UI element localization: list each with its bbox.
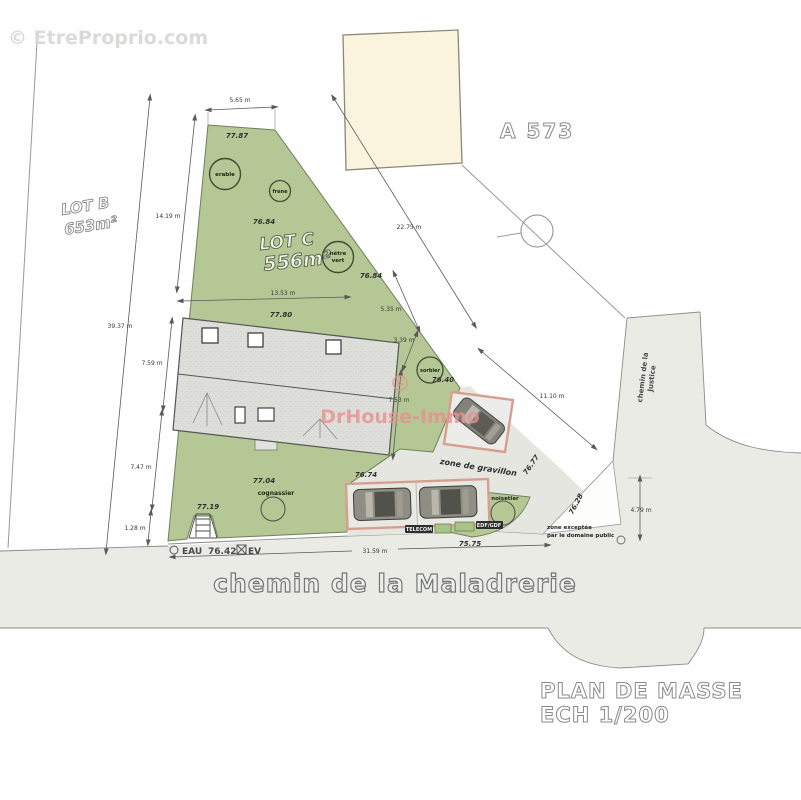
dimension-label: 13.53 m (271, 290, 296, 297)
roof-window (202, 328, 218, 343)
edf-label: EDF/GDF (477, 523, 501, 529)
dimension-label: 11.10 m (540, 393, 565, 400)
street-maladrerie: chemin de la Maladrerie (213, 569, 577, 598)
tree-label: hêtre (330, 250, 347, 257)
main-building (173, 318, 399, 455)
elevation: 76.40 (432, 376, 454, 384)
water-utility-row: EAU 76.42 EV (170, 545, 261, 557)
site-plan-page: erable frene hêtre vert sorbier cognassi… (0, 0, 801, 800)
tree-label: vert (332, 258, 345, 264)
dimension-label: 7.53 m (388, 397, 409, 404)
elevation: 77.04 (253, 477, 275, 485)
dimension-label: 5.35 m (380, 306, 401, 313)
parked-car-right (419, 485, 477, 518)
tree-label: sorbier (420, 368, 441, 374)
roof-window (258, 408, 274, 421)
dimension-label: 39.37 m (108, 323, 133, 330)
telecom-label: TELECOM (406, 527, 432, 533)
plan-scale: ECH 1/200 (540, 703, 670, 727)
parked-car-left (353, 488, 411, 521)
elevation: 76.84 (253, 218, 275, 226)
neighbor-building (343, 30, 462, 170)
telecom-box (435, 524, 451, 533)
public-domain-note: zone exceptée (547, 524, 592, 531)
dimension-label: 4.79 m (630, 507, 651, 514)
tree-label: noisetier (491, 496, 519, 502)
parcel-a573-label: A 573 (500, 119, 574, 143)
elevation: 77.19 (197, 503, 219, 511)
dimension-label: 14.19 m (156, 213, 181, 220)
eau-label: EAU (182, 547, 202, 557)
tree-label: erable (215, 172, 235, 178)
elevation: 77.80 (270, 311, 292, 319)
copyright-symbol: © (396, 379, 405, 389)
tree-label: frene (273, 189, 289, 195)
public-domain-note: par le domaine public (547, 533, 614, 539)
dimension-label: 7.47 m (130, 464, 151, 471)
etreproprio-watermark: © EtreProprio.com (8, 27, 208, 49)
dimension-label: 22.75 m (397, 224, 422, 231)
elevation: 76.74 (355, 471, 377, 479)
chimney (235, 407, 245, 423)
dimension-label: 3.39 m (393, 337, 414, 344)
roof-window (326, 340, 341, 354)
dimension-label: 1.28 m (124, 525, 145, 532)
site-plan-drawing: erable frene hêtre vert sorbier cognassi… (0, 0, 801, 800)
plan-title: PLAN DE MASSE (540, 679, 743, 703)
tree-label: cognassier (258, 490, 295, 497)
elevation: 77.87 (226, 132, 248, 140)
dimension-label: 7.59 m (141, 360, 162, 367)
parking-bay (346, 479, 489, 529)
elevation: 75.75 (459, 540, 481, 548)
edf-box (455, 522, 474, 531)
ev-label: EV (248, 547, 261, 557)
eau-elevation: 76.42 (208, 547, 236, 557)
dimension-label: 5.65 m (229, 97, 250, 104)
drhouse-watermark: DrHouse-Immo (320, 406, 479, 428)
dimension-label: 31.59 m (363, 548, 388, 555)
roof-window (248, 333, 263, 347)
elevation: 76.84 (360, 272, 382, 280)
